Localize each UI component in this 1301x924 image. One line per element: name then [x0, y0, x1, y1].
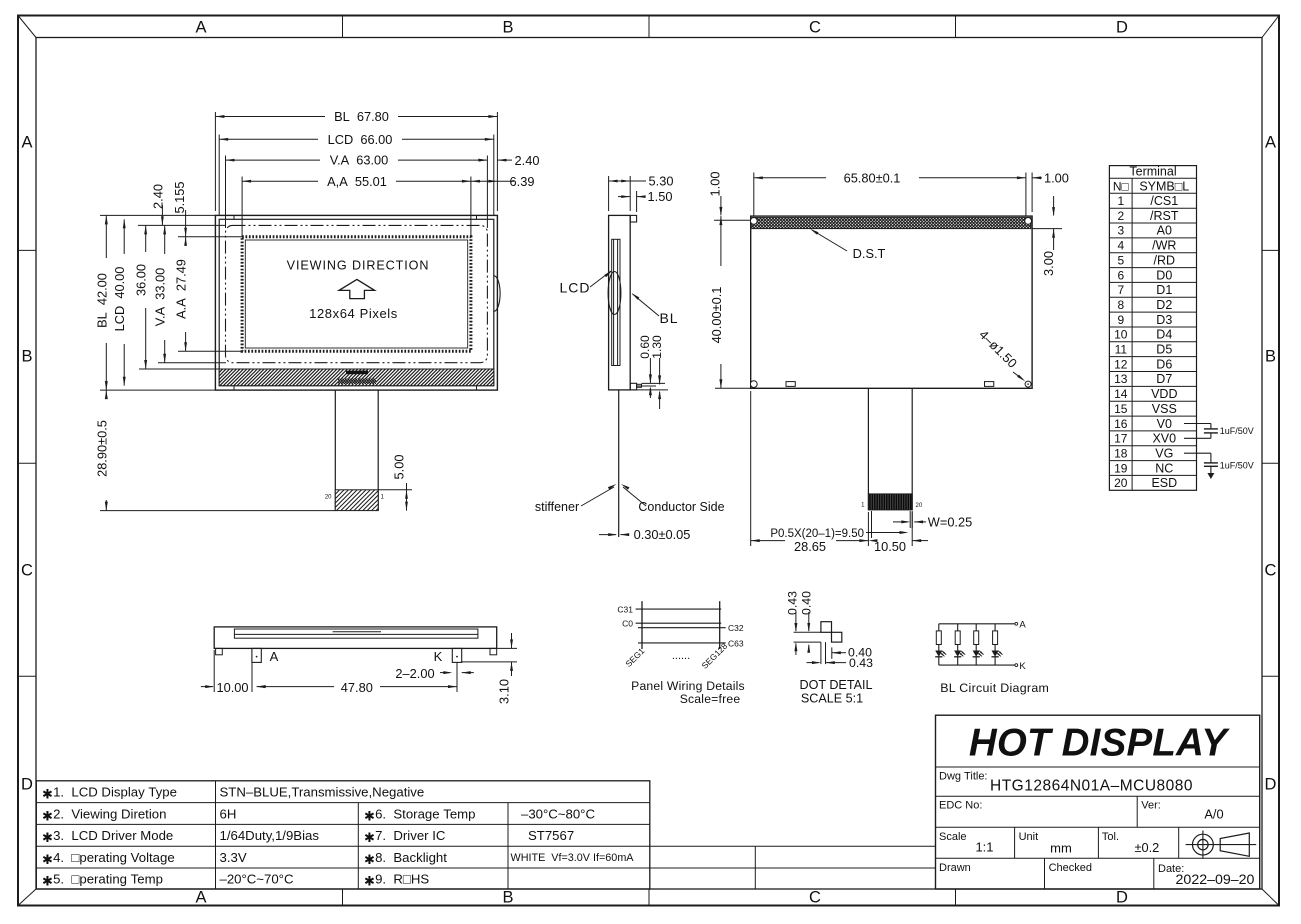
svg-text:D4: D4: [1156, 328, 1172, 342]
svg-text:D: D: [21, 776, 33, 794]
svg-text:D: D: [1116, 889, 1128, 907]
svg-text:14: 14: [1114, 387, 1128, 401]
svg-text:✱1. LCD Display Type: ✱1. LCD Display Type: [42, 785, 177, 802]
svg-text:17: 17: [1114, 432, 1128, 446]
svg-text:Drawn: Drawn: [939, 862, 971, 874]
svg-text:A: A: [21, 134, 32, 152]
svg-text:✱5. □perating Temp: ✱5. □perating Temp: [42, 871, 163, 888]
svg-text:D5: D5: [1156, 343, 1172, 357]
svg-text:SYMB□L: SYMB□L: [1139, 179, 1189, 193]
svg-text:A/0: A/0: [1204, 807, 1223, 822]
svg-text:BL 42.00: BL 42.00: [94, 273, 109, 328]
svg-text:BL 67.80: BL 67.80: [334, 109, 389, 124]
svg-text:A.A 27.49: A.A 27.49: [174, 259, 189, 319]
svg-text:–20°C~70°C: –20°C~70°C: [220, 871, 294, 886]
svg-text:1/64Duty,1/9Bias: 1/64Duty,1/9Bias: [220, 828, 320, 843]
svg-text:5.155: 5.155: [172, 181, 187, 213]
svg-text:V.A 63.00: V.A 63.00: [330, 153, 389, 168]
svg-text:mm: mm: [1050, 841, 1072, 856]
svg-text:1.30: 1.30: [650, 335, 664, 359]
svg-text:LCD 40.00: LCD 40.00: [112, 267, 127, 332]
svg-text:2.40: 2.40: [150, 184, 165, 209]
svg-text:1.50: 1.50: [648, 189, 673, 204]
svg-text:/WR: /WR: [1152, 239, 1176, 253]
svg-text:C31: C31: [617, 604, 633, 614]
svg-text:10: 10: [1114, 328, 1128, 342]
svg-text:D.S.T: D.S.T: [853, 246, 886, 261]
svg-text:11: 11: [1115, 343, 1128, 357]
svg-text:0.43: 0.43: [849, 656, 873, 670]
svg-text:D7: D7: [1156, 372, 1172, 386]
svg-text:4: 4: [1117, 239, 1124, 253]
svg-text:B: B: [21, 348, 32, 366]
svg-text:28.65: 28.65: [794, 539, 826, 554]
svg-text:1.00: 1.00: [708, 172, 723, 197]
svg-text:Terminal: Terminal: [1129, 165, 1176, 179]
svg-text:Dwg Title:: Dwg Title:: [939, 771, 988, 783]
svg-text:C0: C0: [622, 618, 633, 628]
svg-text:3: 3: [1117, 224, 1124, 238]
svg-text:WHITE Vf=3.0V If=60mA: WHITE Vf=3.0V If=60mA: [511, 852, 635, 864]
svg-text:ESD: ESD: [1151, 476, 1177, 490]
svg-text:40.00±0.1: 40.00±0.1: [709, 287, 724, 344]
svg-text:✱6. Storage Temp: ✱6. Storage Temp: [364, 806, 476, 823]
svg-text:0.30±0.05: 0.30±0.05: [634, 527, 691, 542]
svg-text:C: C: [809, 19, 821, 37]
svg-text:ST7567: ST7567: [528, 828, 574, 843]
svg-text:36.00: 36.00: [134, 264, 149, 296]
svg-text:LCD: LCD: [559, 280, 590, 296]
svg-text:✱2. Viewing Diretion: ✱2. Viewing Diretion: [42, 806, 166, 823]
svg-text:A: A: [1265, 134, 1276, 152]
svg-text:VG: VG: [1155, 447, 1173, 461]
svg-text:5.00: 5.00: [392, 455, 407, 480]
svg-text:5.30: 5.30: [649, 174, 674, 189]
svg-text:XV0: XV0: [1152, 432, 1176, 446]
svg-text:N□: N□: [1113, 179, 1129, 193]
svg-text:A0: A0: [1157, 224, 1172, 238]
svg-text:/CS1: /CS1: [1150, 194, 1178, 208]
svg-text:Conductor Side: Conductor Side: [638, 500, 724, 514]
svg-text:VDD: VDD: [1151, 387, 1177, 401]
svg-text:VIEWING DIRECTION: VIEWING DIRECTION: [287, 259, 430, 273]
svg-text:B: B: [1265, 348, 1276, 366]
svg-text:7: 7: [1117, 283, 1124, 297]
svg-text:D1: D1: [1156, 283, 1172, 297]
svg-text:V.A 33.00: V.A 33.00: [153, 268, 168, 327]
svg-text:✱7. Driver IC: ✱7. Driver IC: [364, 828, 446, 845]
svg-text:10.00: 10.00: [216, 680, 248, 695]
svg-text:Scale=free: Scale=free: [680, 692, 741, 706]
svg-text:15: 15: [1114, 402, 1128, 416]
svg-text:65.80±0.1: 65.80±0.1: [844, 170, 901, 185]
svg-text:✱4. □perating Voltage: ✱4. □perating Voltage: [42, 850, 175, 867]
svg-text:V0: V0: [1157, 417, 1172, 431]
svg-text:D3: D3: [1156, 313, 1172, 327]
svg-text:5: 5: [1117, 253, 1124, 267]
svg-text:28.90±0.5: 28.90±0.5: [94, 420, 109, 477]
svg-text:Ver:: Ver:: [1141, 800, 1161, 812]
svg-text:VSS: VSS: [1152, 402, 1177, 416]
svg-text:8: 8: [1117, 298, 1124, 312]
svg-text:0.40: 0.40: [800, 591, 814, 615]
svg-text:A: A: [195, 889, 206, 907]
svg-text:6.39: 6.39: [510, 174, 535, 189]
svg-text:NC: NC: [1155, 461, 1173, 475]
svg-text:Checked: Checked: [1049, 862, 1092, 874]
svg-text:–30°C~80°C: –30°C~80°C: [521, 806, 595, 821]
svg-text:1uF/50V: 1uF/50V: [1220, 461, 1254, 471]
svg-text:18: 18: [1114, 447, 1128, 461]
svg-text:B: B: [502, 19, 513, 37]
svg-text:47.80: 47.80: [341, 680, 373, 695]
svg-text:2.40: 2.40: [515, 153, 540, 168]
svg-text:K: K: [1019, 661, 1026, 672]
svg-text:stiffener: stiffener: [535, 500, 579, 514]
svg-text:DOT DETAIL: DOT DETAIL: [799, 678, 872, 692]
svg-text:20: 20: [1114, 476, 1128, 490]
svg-text:Scale: Scale: [939, 831, 967, 843]
svg-text:A,A 55.01: A,A 55.01: [327, 174, 387, 189]
svg-text:D6: D6: [1156, 357, 1172, 371]
svg-text:HTG12864N01A–MCU8080: HTG12864N01A–MCU8080: [990, 778, 1193, 795]
svg-text:3.3V: 3.3V: [220, 850, 247, 865]
svg-text:C: C: [1265, 562, 1277, 580]
svg-text:B: B: [502, 889, 513, 907]
svg-text:D0: D0: [1156, 268, 1172, 282]
svg-text:A: A: [270, 649, 279, 664]
svg-text:✱9. R□HS: ✱9. R□HS: [364, 871, 429, 888]
svg-text:A: A: [1019, 620, 1026, 631]
svg-text:A: A: [195, 19, 206, 37]
svg-text:HOT DISPLAY: HOT DISPLAY: [969, 722, 1230, 765]
svg-text:1: 1: [1117, 194, 1124, 208]
svg-text:C32: C32: [728, 623, 744, 633]
svg-text:W=0.25: W=0.25: [928, 515, 972, 530]
svg-text:1.00: 1.00: [1044, 170, 1069, 185]
svg-text:6H: 6H: [220, 806, 237, 821]
svg-text:±0.2: ±0.2: [1134, 840, 1159, 855]
svg-text:2: 2: [1117, 209, 1124, 223]
svg-text:3.10: 3.10: [497, 679, 512, 704]
svg-text:✱8. Backlight: ✱8. Backlight: [364, 850, 447, 867]
svg-text:1uF/50V: 1uF/50V: [1220, 426, 1254, 436]
svg-text:Tol.: Tol.: [1102, 831, 1119, 843]
svg-text:6: 6: [1117, 268, 1124, 282]
svg-text:✱3. LCD Driver Mode: ✱3. LCD Driver Mode: [42, 828, 173, 845]
svg-text:SCALE 5:1: SCALE 5:1: [801, 692, 863, 706]
svg-text:1:1: 1:1: [975, 840, 993, 855]
svg-text:STN–BLUE,Transmissive,Negative: STN–BLUE,Transmissive,Negative: [220, 785, 425, 800]
svg-text:/RD: /RD: [1154, 253, 1176, 267]
svg-text:128x64 Pixels: 128x64 Pixels: [309, 306, 398, 321]
svg-text:16: 16: [1114, 417, 1128, 431]
svg-text:D: D: [1265, 776, 1277, 794]
svg-text:Unit: Unit: [1019, 831, 1039, 843]
svg-text:D: D: [1116, 19, 1128, 37]
svg-text:K: K: [434, 649, 443, 664]
svg-text:EDC No:: EDC No:: [939, 800, 982, 812]
svg-text:20: 20: [916, 503, 923, 509]
svg-text:13: 13: [1114, 372, 1128, 386]
svg-text:D2: D2: [1156, 298, 1172, 312]
svg-text:LCD 66.00: LCD 66.00: [328, 132, 393, 147]
svg-text:10.50: 10.50: [874, 539, 906, 554]
svg-text:C: C: [809, 889, 821, 907]
svg-text:3.00: 3.00: [1041, 251, 1056, 276]
svg-text:9: 9: [1117, 313, 1124, 327]
svg-text:/RST: /RST: [1150, 209, 1179, 223]
svg-text:20: 20: [325, 495, 332, 501]
svg-text:C: C: [21, 562, 33, 580]
svg-text:C63: C63: [728, 638, 744, 648]
svg-text:BL: BL: [659, 310, 678, 326]
svg-text:Panel Wiring Details: Panel Wiring Details: [631, 679, 745, 693]
svg-text:0.43: 0.43: [786, 591, 800, 615]
svg-text:19: 19: [1114, 461, 1128, 475]
svg-text:2022–09–20: 2022–09–20: [1176, 872, 1255, 888]
svg-text:BL Circuit Diagram: BL Circuit Diagram: [940, 681, 1049, 695]
svg-text:......: ......: [672, 650, 690, 662]
svg-text:2–2.00: 2–2.00: [395, 666, 434, 681]
svg-text:12: 12: [1114, 357, 1128, 371]
